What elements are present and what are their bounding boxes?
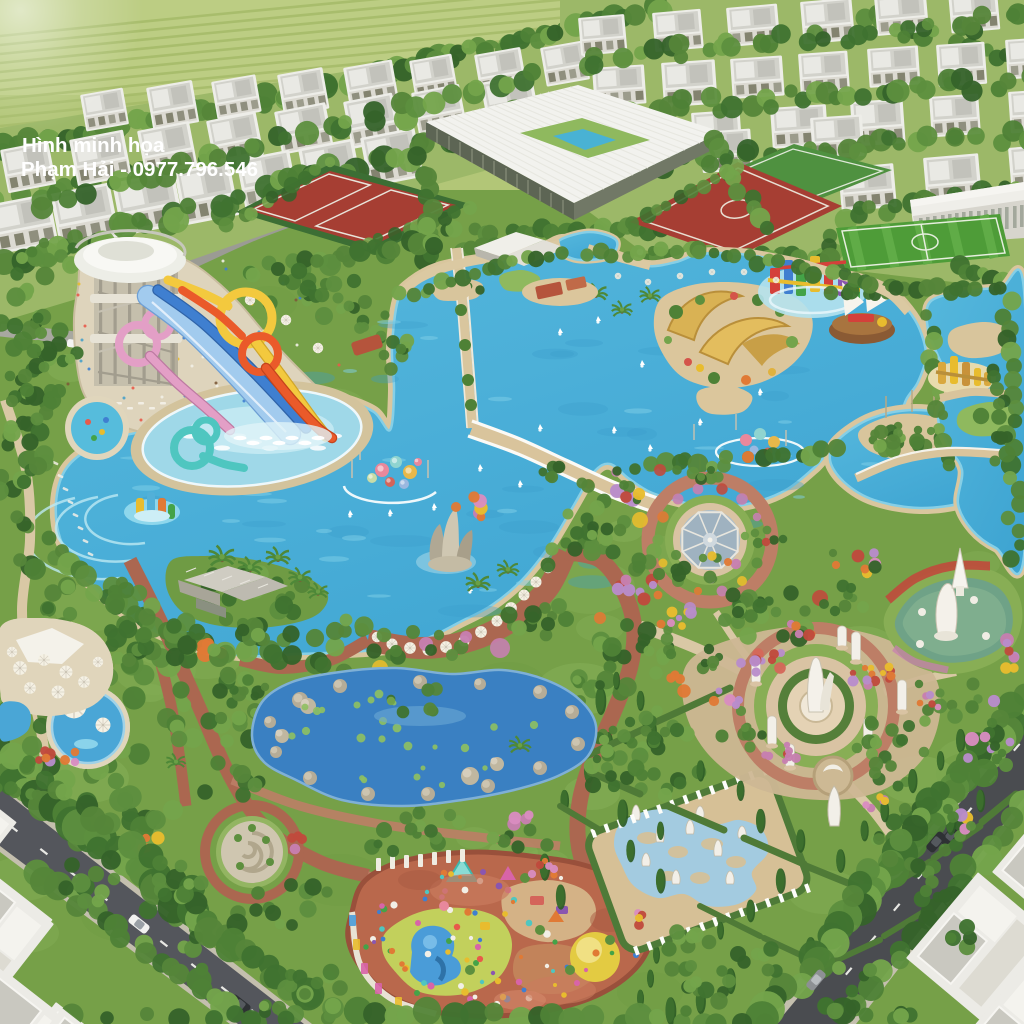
svg-text:Phạm Hải - 0977.796.546: Phạm Hải - 0977.796.546 [21,158,258,181]
svg-text:Hình minh họa: Hình minh họa [22,134,165,157]
